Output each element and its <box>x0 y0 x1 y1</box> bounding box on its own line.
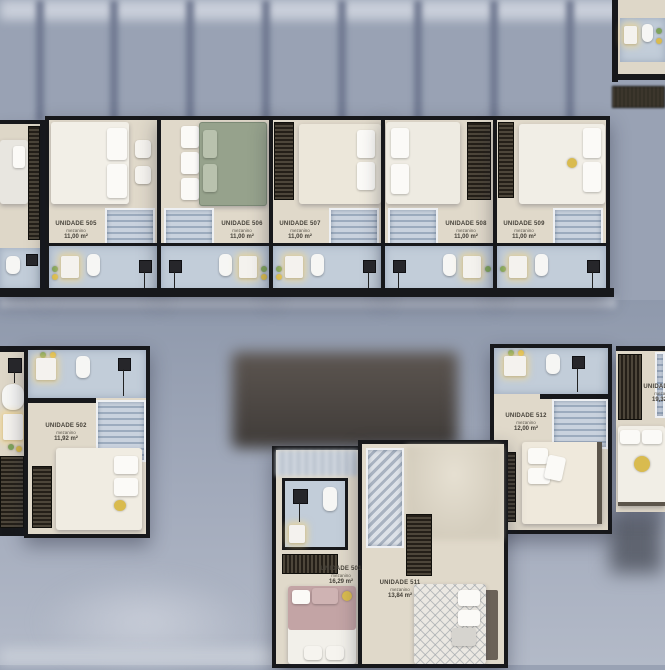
headboard <box>597 442 602 524</box>
toilet <box>443 254 456 276</box>
sink-vanity <box>504 356 526 376</box>
unit-label: UNIDADE 513 mezanino 19,32 m² <box>642 380 665 408</box>
window-mullion <box>338 0 346 122</box>
pillow <box>181 126 199 148</box>
window-mullion <box>262 0 270 122</box>
unit-area: 11,00 m² <box>64 234 88 241</box>
unit-508[interactable]: UNIDADE 508 mezanino 11,00 m² <box>381 116 498 296</box>
wardrobe <box>274 122 294 200</box>
toilet <box>642 24 653 42</box>
sink-vanity <box>463 256 481 278</box>
background-smudge <box>610 515 662 573</box>
pillow <box>528 448 548 464</box>
unit-label: UNIDADE 502 mezanino 11,92 m² <box>42 418 90 448</box>
unit-506[interactable]: UNIDADE 506 mezanino 11,00 m² <box>157 116 274 296</box>
unit-area: 19,32 m² <box>652 397 665 404</box>
unit-area: 11,92 m² <box>54 436 78 443</box>
pillow <box>452 628 476 646</box>
wardrobe <box>467 122 491 200</box>
throw-accent <box>114 500 126 511</box>
tv <box>572 356 585 369</box>
pillow <box>181 178 199 200</box>
unit-label: UNIDADE 512 mezanino 12,00 m² <box>504 408 548 438</box>
tv <box>8 358 22 373</box>
pillow <box>583 128 601 158</box>
plant <box>16 446 22 452</box>
stool <box>326 646 344 660</box>
tv <box>169 260 182 273</box>
sink-vanity <box>285 256 303 278</box>
unit-name: UNIDADE 509 <box>503 221 544 228</box>
tv-stand <box>14 371 15 383</box>
tv <box>393 260 406 273</box>
unit-area: 16,29 m² <box>329 579 353 586</box>
bed <box>56 448 142 530</box>
sink-vanity <box>239 256 257 278</box>
wall <box>616 346 665 351</box>
nightstand <box>135 166 151 184</box>
plant <box>8 444 14 450</box>
background-sill-strip <box>0 297 616 308</box>
kitchen-counter <box>3 414 23 440</box>
plant <box>261 274 267 280</box>
pillow <box>203 164 217 192</box>
toilet <box>219 254 232 276</box>
pillow <box>391 164 409 194</box>
toilet <box>87 254 100 276</box>
plant <box>276 274 282 280</box>
tv-stand <box>577 367 578 392</box>
unit-name: UNIDADE 502 <box>45 423 86 430</box>
unit-name: UNIDADE 507 <box>279 221 320 228</box>
pillow <box>357 162 375 190</box>
sink-vanity <box>509 256 527 278</box>
pillow <box>620 430 640 444</box>
unit-512[interactable]: UNIDADE 512 mezanino 12,00 m² <box>490 344 612 534</box>
bed <box>288 586 356 664</box>
pillow <box>458 610 480 626</box>
unit-label: UNIDADE 511 mezanino 13,84 m² <box>380 576 420 604</box>
pillow <box>292 590 310 604</box>
pillow <box>13 146 25 168</box>
pillow <box>544 454 567 481</box>
pillow <box>357 130 375 158</box>
unit-name: UNIDADE 508 <box>445 221 486 228</box>
sink-vanity <box>289 525 305 543</box>
tv-stand <box>144 271 145 288</box>
bed <box>414 584 486 664</box>
toilet <box>546 354 560 374</box>
plant <box>52 266 58 272</box>
unit-name: UNIDADE 501 <box>320 566 361 573</box>
background-bottom-strip <box>0 648 280 665</box>
unit-area: 11,00 m² <box>454 234 478 241</box>
unit-label: UNIDADE 508 mezanino 11,00 m² <box>441 216 491 246</box>
plant <box>276 266 282 272</box>
bed <box>522 442 602 524</box>
tv-stand <box>123 369 124 396</box>
unit-507[interactable]: UNIDADE 507 mezanino 11,00 m² <box>269 116 386 296</box>
window-mullion <box>36 0 44 122</box>
throw-accent <box>342 591 352 601</box>
wall <box>612 74 665 80</box>
pillow <box>203 130 217 158</box>
sink-vanity <box>36 358 56 380</box>
unit-area: 11,00 m² <box>512 234 536 241</box>
plant <box>261 266 267 272</box>
pillow <box>312 588 338 604</box>
unit-label: UNIDADE 501 mezanino 16,29 m² <box>324 562 358 590</box>
unit-name: UNIDADE 505 <box>55 221 96 228</box>
stool <box>304 646 322 660</box>
background-void-dark <box>232 352 458 448</box>
round-cushion <box>634 456 650 472</box>
unit-name: UNIDADE 513 <box>643 384 665 391</box>
plant <box>485 266 491 272</box>
unit-label: UNIDADE 506 mezanino 11,00 m² <box>217 216 267 246</box>
unit-name: UNIDADE 506 <box>221 221 262 228</box>
unit-label: UNIDADE 509 mezanino 11,00 m² <box>499 216 549 246</box>
floorplan-canvas: { "palette": { "wall": "#17181b", "floor… <box>0 0 665 665</box>
wardrobe <box>0 456 24 528</box>
tv <box>139 260 152 273</box>
unit-509[interactable]: UNIDADE 509 mezanino 11,00 m² <box>493 116 610 296</box>
tv-stand <box>299 502 300 522</box>
pillow <box>114 456 138 474</box>
throw-accent <box>567 158 577 168</box>
bed <box>618 426 665 506</box>
wardrobe <box>612 86 665 108</box>
pillow <box>391 128 409 158</box>
plant <box>500 266 506 272</box>
unit-area: 11,00 m² <box>288 234 312 241</box>
tv <box>26 254 38 266</box>
stairs <box>366 448 404 548</box>
unit-505[interactable]: UNIDADE 505 mezanino 11,00 m² <box>45 116 162 296</box>
tv <box>587 260 600 273</box>
window-mullion <box>186 0 194 122</box>
tv-stand <box>592 271 593 288</box>
unit-501[interactable]: UNIDADE 501 mezanino 16,29 m² <box>272 446 362 668</box>
wall <box>0 120 46 124</box>
tv-stand <box>398 271 399 288</box>
pillow <box>181 152 199 174</box>
sink-vanity <box>624 26 637 44</box>
wardrobe <box>498 122 514 198</box>
unit-area: 11,00 m² <box>230 234 254 241</box>
unit-area: 13,84 m² <box>388 593 412 600</box>
sink-vanity <box>61 256 79 278</box>
wardrobe <box>32 466 52 528</box>
tv-stand <box>174 271 175 288</box>
tv <box>118 358 131 371</box>
window-mullion <box>490 0 498 122</box>
unit-name: UNIDADE 512 <box>505 413 546 420</box>
unit-label: UNIDADE 507 mezanino 11,00 m² <box>275 216 325 246</box>
pillow <box>107 164 127 198</box>
bathtub <box>2 384 24 410</box>
toilet <box>323 487 337 511</box>
plant <box>656 28 662 34</box>
tv <box>293 489 308 504</box>
bathroom <box>282 478 348 550</box>
footboard <box>618 502 665 506</box>
window-mullion <box>110 0 118 122</box>
toilet <box>76 356 90 378</box>
unit-label: UNIDADE 505 mezanino 11,00 m² <box>51 216 101 246</box>
wardrobe <box>28 126 40 240</box>
toilet <box>535 254 548 276</box>
pillow <box>583 162 601 192</box>
wall <box>28 398 96 403</box>
pillow <box>107 128 127 160</box>
tv <box>363 260 376 273</box>
toilet <box>6 256 20 274</box>
plant <box>656 38 662 44</box>
window-mullion <box>414 0 422 122</box>
pillow <box>642 430 662 444</box>
nightstand <box>135 140 151 158</box>
unit-area: 12,00 m² <box>514 426 538 433</box>
wardrobe <box>406 514 432 576</box>
unit-511[interactable]: UNIDADE 511 mezanino 13,84 m² <box>358 440 508 668</box>
stairs <box>276 450 358 476</box>
plant <box>52 274 58 280</box>
window-mullion <box>566 0 574 122</box>
wardrobe <box>618 354 642 420</box>
pillow <box>458 590 480 606</box>
tv-stand <box>368 271 369 288</box>
toilet <box>311 254 324 276</box>
unit-name: UNIDADE 511 <box>380 580 421 587</box>
unit-502[interactable]: UNIDADE 502 mezanino 11,92 m² <box>24 346 150 538</box>
pillow <box>114 478 138 496</box>
wall <box>0 288 614 297</box>
